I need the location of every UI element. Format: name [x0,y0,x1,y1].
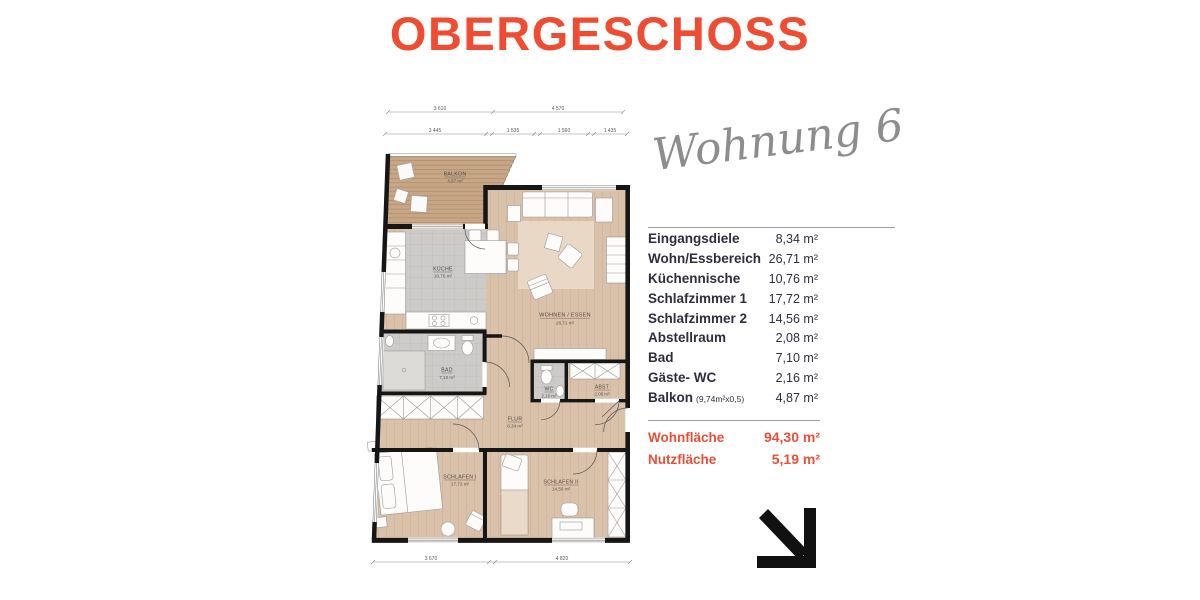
dim-label: 4 570 [552,106,565,112]
svg-text:SCHLAFEN II: SCHLAFEN II [543,480,578,486]
svg-text:KÜCHE: KÜCHE [433,266,453,273]
svg-text:BALKON: BALKON [444,172,467,178]
room-label: Schlafzimmer 2 [648,311,747,326]
table-row: Schlafzimmer 2 14,56 m² [648,309,818,329]
room-area: 17,72 m² [769,292,818,306]
balcony-railing [388,154,516,157]
room-note: (9,74m²x0,5) [696,394,744,404]
svg-text:8,34 m²: 8,34 m² [507,424,523,429]
total-area: 94,30 m² [764,429,820,445]
wardrobe-2 [608,452,626,537]
side-table [508,206,521,222]
room-area: 10,76 m² [769,272,818,286]
svg-text:7,10 m²: 7,10 m² [439,375,455,380]
divider-above-totals [648,420,820,421]
room-label: Eingangsdiele [648,231,740,246]
svg-text:ABST: ABST [595,385,609,391]
room-area: 4,87 m² [776,391,818,405]
total-area: 5,19 m² [772,451,820,467]
arrow-down-right-icon [757,508,816,568]
table-row: Gäste- WC 2,16 m² [648,368,818,388]
dim-label: 1 535 [507,128,520,134]
total-label: Wohnfläche [648,430,724,445]
svg-text:4,87 m²: 4,87 m² [447,179,463,184]
room-label: Abstellraum [648,330,726,345]
dim-label: 3 610 [434,106,447,112]
shelf [607,237,627,283]
svg-text:10,76 m²: 10,76 m² [434,274,453,279]
dim-label: 1 560 [558,128,571,134]
room-area: 14,56 m² [769,312,818,326]
table-row: Eingangsdiele 8,34 m² [648,229,818,249]
room-label: Schlafzimmer 1 [648,291,747,306]
room-area: 7,10 m² [776,351,818,365]
svg-text:17,72 m²: 17,72 m² [451,482,470,487]
total-row: Wohnfläche 94,30 m² [648,426,820,448]
room-area: 8,34 m² [776,232,818,246]
svg-text:WC: WC [545,387,554,393]
room-area: 26,71 m² [769,252,818,266]
svg-text:2,08 m²: 2,08 m² [595,392,610,397]
dim-label: 3 670 [425,556,438,562]
svg-text:26,71 m²: 26,71 m² [556,321,575,326]
storage-cabinet [570,363,620,379]
table-row: Bad 7,10 m² [648,348,818,368]
page-title: OBERGESCHOSS [0,6,1200,61]
dim-label: 1 435 [604,128,617,134]
table-row: Balkon(9,74m²x0,5) 4,87 m² [648,388,818,408]
svg-text:SCHLAFEN I: SCHLAFEN I [443,475,477,481]
room-area: 2,08 m² [776,331,818,345]
sideboard [534,349,606,360]
room-area-table: Eingangsdiele 8,34 m² Wohn/Essbereich 26… [648,229,818,408]
bed-2 [501,453,528,535]
table-row: Wohn/Essbereich 26,71 m² [648,249,818,269]
total-row: Nutzfläche 5,19 m² [648,448,820,470]
divider-under-unit-label [648,227,895,228]
svg-text:WOHNEN / ESSEN: WOHNEN / ESSEN [539,313,591,319]
room-label: Küchennische [648,271,740,286]
totals-block: Wohnfläche 94,30 m² Nutzfläche 5,19 m² [648,426,820,470]
table-row: Schlafzimmer 1 17,72 m² [648,289,818,309]
table-row: Küchennische 10,76 m² [648,269,818,289]
room-area: 2,16 m² [776,371,818,385]
room-label: Wohn/Essbereich [648,251,761,266]
side-table [596,198,613,222]
svg-text:14,56 m²: 14,56 m² [552,487,571,492]
table-row: Abstellraum 2,08 m² [648,328,818,348]
svg-text:BAD: BAD [441,368,453,374]
living-rug [518,221,594,289]
corner-arrow-icon [752,502,824,574]
label-kueche: KÜCHE 10,76 m² [433,266,453,279]
room-label: Gäste- WC [648,370,716,385]
hall-wardrobe [377,396,484,419]
handwritten-unit-label: Wohnung 6 [650,101,894,181]
dim-label: 4 820 [556,556,569,562]
sofa [523,192,593,217]
svg-text:FLUR: FLUR [508,417,523,423]
dim-label: 3 445 [429,128,442,134]
floor-plan: BALKON 4,87 m² KÜCHE 10,76 m² WOHNEN / E… [355,90,655,590]
total-label: Nutzfläche [648,452,716,467]
pouf [441,522,455,536]
svg-text:2,16 m²: 2,16 m² [542,394,557,399]
